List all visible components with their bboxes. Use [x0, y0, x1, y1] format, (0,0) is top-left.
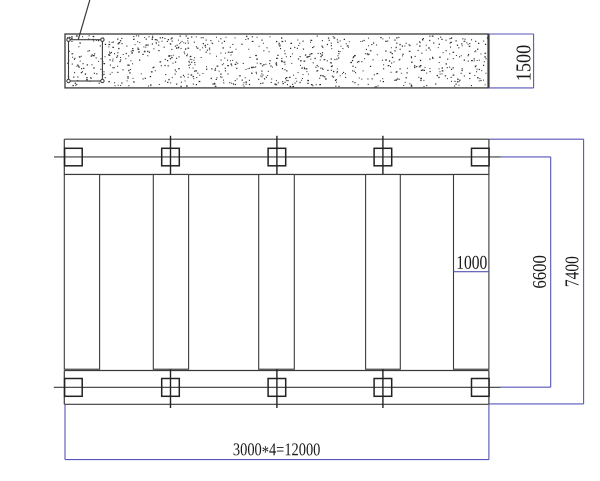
- svg-text:1000: 1000: [456, 253, 487, 274]
- svg-text:1500: 1500: [511, 45, 535, 82]
- svg-text:7400: 7400: [561, 256, 583, 287]
- svg-text:3000*4=12000: 3000*4=12000: [233, 439, 321, 462]
- svg-text:6600: 6600: [529, 255, 551, 289]
